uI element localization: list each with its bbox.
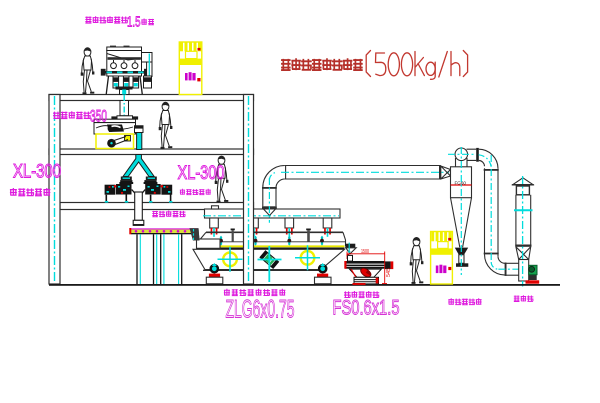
svg-text:1.5: 1.5 — [127, 14, 141, 31]
svg-text:1500: 1500 — [361, 249, 369, 255]
svg-text:FG60: FG60 — [455, 180, 467, 185]
svg-text:ZLG6x0.75: ZLG6x0.75 — [226, 296, 295, 324]
svg-text:350: 350 — [90, 107, 107, 126]
svg-text:545: 545 — [386, 268, 392, 277]
svg-text:FS0.6x1.5: FS0.6x1.5 — [333, 297, 400, 320]
svg-text:XL-300: XL-300 — [178, 163, 225, 184]
svg-text:XL-300: XL-300 — [13, 162, 61, 183]
